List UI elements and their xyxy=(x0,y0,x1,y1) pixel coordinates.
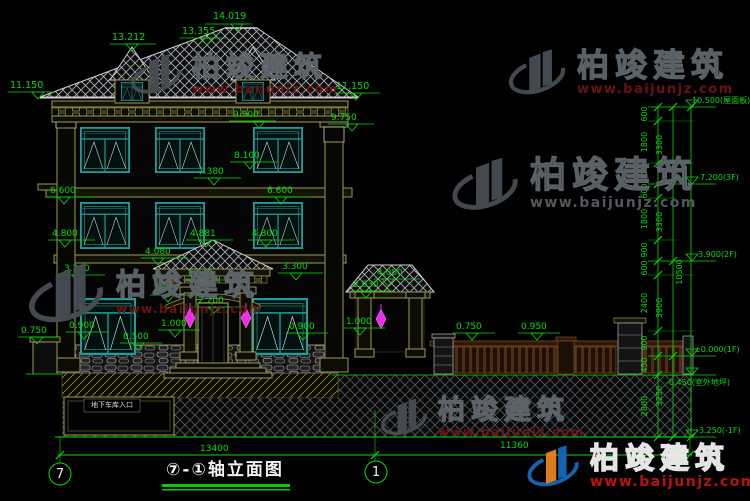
fence-panel xyxy=(575,347,616,373)
dim-label: 0.900 xyxy=(289,323,315,332)
chain-dim: 2400 xyxy=(641,290,651,316)
window xyxy=(81,203,129,248)
left-yard-wall xyxy=(30,337,60,374)
fence-pier xyxy=(558,341,574,374)
dim-label: 4.881 xyxy=(190,230,216,239)
dim-label: 11.150 xyxy=(336,82,369,92)
dim-label: 0.500 xyxy=(123,333,149,342)
elevation-mark: 3.900(2F) xyxy=(698,251,737,259)
watermark-url: www.baijunjz.com xyxy=(590,475,750,489)
watermark-url: www.baijunjz.com xyxy=(116,303,263,315)
dim-label: 0.750 xyxy=(456,323,482,332)
chain-total: 3250 xyxy=(656,383,666,409)
gate-pier xyxy=(618,323,642,374)
pavilion-column xyxy=(409,298,422,354)
axis-number-7: 7 xyxy=(52,468,68,481)
elevation-mark: -3.250(-1F) xyxy=(696,427,741,435)
watermark-name: 柏竣建筑 xyxy=(192,53,339,81)
dentil-cornice xyxy=(52,108,348,116)
dim-label: 8.100 xyxy=(234,152,260,161)
elevation-mark: -0.450(室外地坪) xyxy=(666,379,730,387)
elevation-mark: ±0.000(1F) xyxy=(694,346,740,354)
drawing-title: ⑦-①轴立面图 xyxy=(166,462,284,479)
dim-label: 13.355 xyxy=(182,27,215,37)
garage-entrance-label: 地下车库入口 xyxy=(84,402,140,409)
brand-logo-icon xyxy=(24,256,108,330)
chain-overall: 10500 xyxy=(676,257,686,287)
chain-dim: 450 xyxy=(641,352,651,378)
watermark-url: www.baijunjz.com xyxy=(530,196,698,210)
window xyxy=(254,128,302,172)
dim-label: 0.950 xyxy=(521,323,547,332)
watermark-name: 柏竣建筑 xyxy=(577,49,734,81)
cad-elevation-drawing: 14.019 13.355 13.212 11.150 11.150 9.900… xyxy=(0,0,750,501)
title-underline xyxy=(162,484,290,491)
brand-logo-icon xyxy=(505,44,569,100)
dim-label: 2.630 xyxy=(353,281,379,290)
brand-logo-footer: 柏竣建筑 www.baijunjz.com xyxy=(524,438,750,494)
watermark: 柏竣建筑 www.baijunjz.com xyxy=(448,152,698,216)
window xyxy=(156,128,204,172)
chain-dim: 2800 xyxy=(641,393,651,419)
window xyxy=(81,128,129,172)
brand-logo-icon xyxy=(378,394,430,440)
dim-label: 9.750 xyxy=(331,114,357,123)
watermark-name: 柏竣建筑 xyxy=(116,271,263,301)
dim-label: 13.212 xyxy=(112,33,145,43)
dim-label: 4.800 xyxy=(252,230,278,239)
watermark-name: 柏竣建筑 xyxy=(530,158,698,194)
windows-3f xyxy=(81,128,302,172)
fence-panel xyxy=(453,347,557,373)
chain-total: 3900 xyxy=(656,295,666,321)
dim-label: 11.150 xyxy=(10,81,43,91)
dim-label: 4.080 xyxy=(377,269,403,278)
watermark-url: www.baijunjz.com xyxy=(192,83,339,95)
watermark-url: www.baijunjz.com xyxy=(577,83,734,96)
windows-2f xyxy=(81,203,302,248)
dim-label: 14.019 xyxy=(213,12,246,22)
window xyxy=(156,203,204,248)
brand-logo-icon xyxy=(524,438,582,494)
band-6600 xyxy=(46,188,352,197)
dim-label: 7.380 xyxy=(198,168,224,177)
chain-dim: 600 xyxy=(641,101,651,127)
watermark: 柏竣建筑 www.baijunjz.com xyxy=(505,44,734,100)
watermark-name: 柏竣建筑 xyxy=(590,444,750,473)
dim-label: 3.300 xyxy=(282,263,308,272)
dim-label: 4.800 xyxy=(52,230,78,239)
watermark-url: www.baijunjz.com xyxy=(438,426,585,438)
basement-section xyxy=(62,373,692,437)
brand-logo-icon xyxy=(128,50,184,98)
watermark: 柏竣建筑 www.baijunjz.com xyxy=(24,256,263,330)
dim-label: 9.900 xyxy=(233,111,259,120)
dim-label: 6.600 xyxy=(267,187,293,196)
watermark: 柏竣建筑 www.baijunjz.com xyxy=(378,394,585,440)
dim-label: 6.600 xyxy=(50,187,76,196)
axis-number-1: 1 xyxy=(368,466,384,479)
watermark: 柏竣建筑 www.baijunjz.com xyxy=(128,50,339,98)
dim-label: 1.000 xyxy=(346,318,372,327)
eave-fascia xyxy=(52,101,348,107)
chain-dim: 600 xyxy=(641,255,651,281)
brand-logo-icon xyxy=(448,152,522,216)
steps xyxy=(176,363,260,368)
elevation-mark: 7.200(3F) xyxy=(700,174,739,182)
watermark-name: 柏竣建筑 xyxy=(438,397,585,424)
overall-dim-left: 13400 xyxy=(200,445,229,454)
